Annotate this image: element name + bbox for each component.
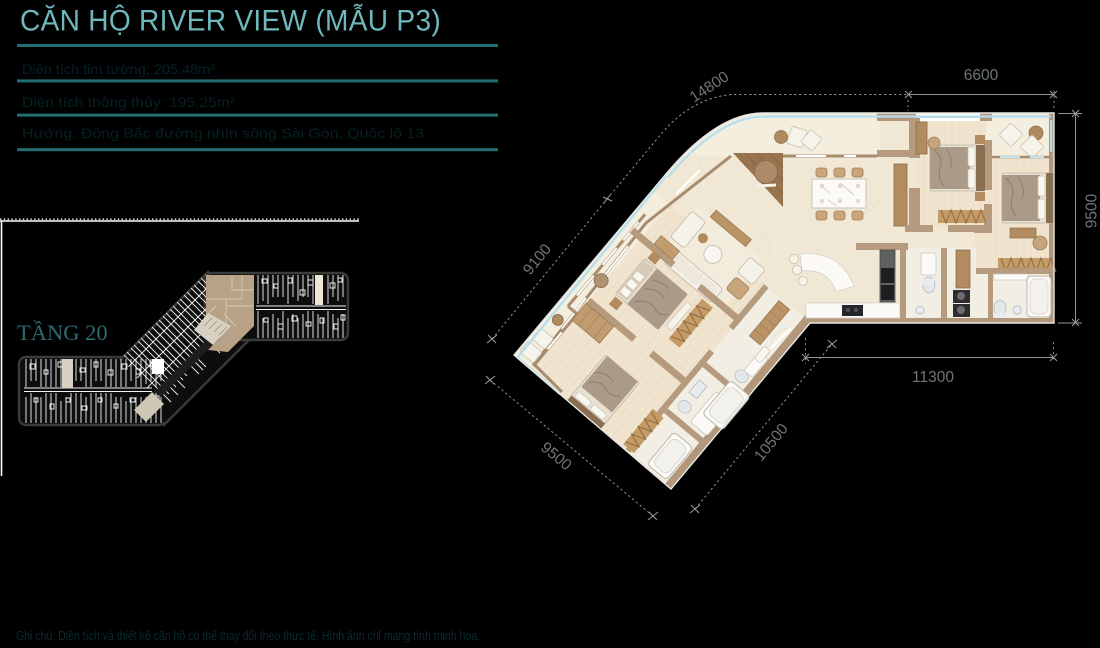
svg-text:Diện tích thông thủy: 195.25m²: Diện tích thông thủy: 195.25m² <box>22 94 235 110</box>
svg-text:CĂN HỘ RIVER VIEW (MẪU P3): CĂN HỘ RIVER VIEW (MẪU P3) <box>20 4 441 38</box>
svg-text:Hướng: Đông Bắc đường nhìn sôn: Hướng: Đông Bắc đường nhìn sông Sài Gòn,… <box>22 125 424 141</box>
svg-text:Ghi chú: Diện tích và thiết kế: Ghi chú: Diện tích và thiết kế căn hộ có… <box>16 629 480 643</box>
svg-text:9500: 9500 <box>1084 193 1100 228</box>
svg-text:TẦNG 20: TẦNG 20 <box>17 319 108 345</box>
svg-text:6600: 6600 <box>964 67 999 84</box>
svg-text:Diện tích tim tường: 205.48m²: Diện tích tim tường: 205.48m² <box>22 61 215 77</box>
svg-text:11300: 11300 <box>912 369 954 386</box>
